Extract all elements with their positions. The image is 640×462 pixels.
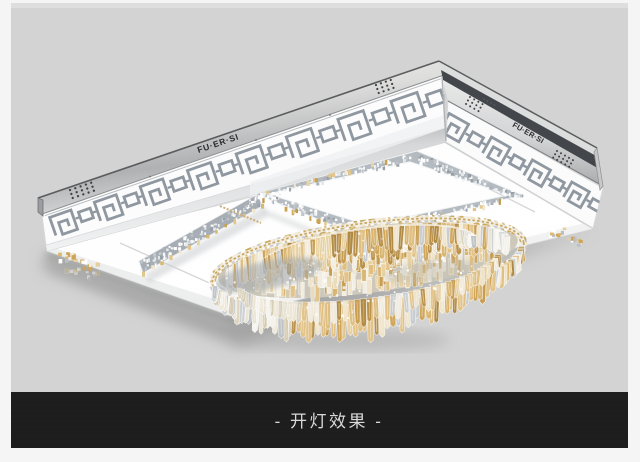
- svg-text:- 开灯效果 -: - 开灯效果 -: [275, 412, 384, 431]
